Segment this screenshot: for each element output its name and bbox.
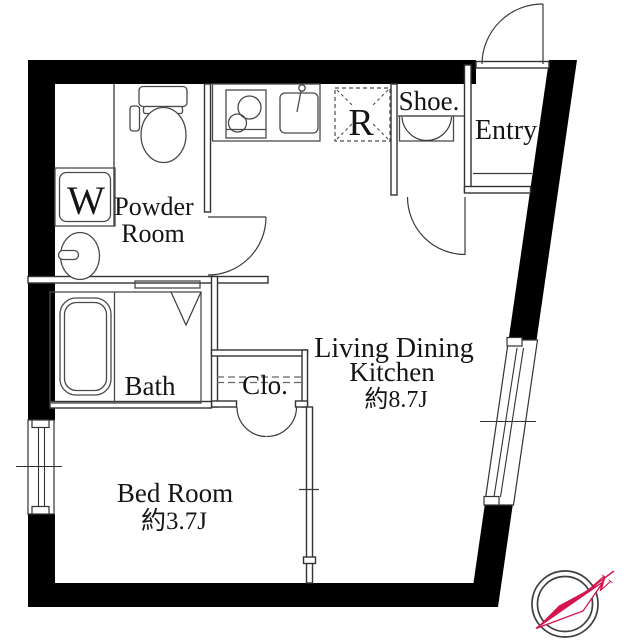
entry-door-threshold [476, 62, 549, 69]
bedroom-area: 約3.7J [141, 507, 207, 535]
wall-entry-bottom [465, 187, 531, 194]
closet-label: Clo. [242, 370, 288, 400]
bathtub-inner [65, 303, 107, 391]
wall-powder-bottom [28, 277, 268, 284]
toilet-icon [130, 87, 187, 163]
powder-room-label-line2: Room [121, 219, 185, 248]
wall-powder-right [205, 84, 211, 212]
wall-bottom [28, 583, 474, 607]
hall-ldk-door [408, 197, 466, 255]
wall-entry-left [465, 65, 472, 192]
bathtub-icon [60, 298, 111, 395]
window-right-slanted [480, 338, 538, 506]
shoe-label: Shoe. [399, 86, 460, 116]
compass-icon: N [532, 568, 616, 637]
entry-door [482, 4, 543, 64]
wall-closet-top [212, 350, 308, 356]
wall-partition-cap [304, 557, 316, 564]
wall-left-lower [28, 514, 55, 583]
window-left [16, 420, 62, 514]
bath-label: Bath [125, 371, 176, 401]
floor-plan-drawing: Powder Room Bath Clo. Bed Room 約3.7J Liv… [0, 0, 640, 640]
floor-plan: Powder Room Bath Clo. Bed Room 約3.7J Liv… [0, 0, 640, 640]
shoe-cabinet-icon [398, 116, 464, 141]
wall-kitchen-hall [391, 84, 397, 195]
bath-folding-door [135, 281, 201, 325]
ldk-area: 約8.7J [364, 386, 427, 413]
wall-top [28, 60, 476, 84]
powder-room-label-line1: Powder [114, 192, 194, 221]
wall-left-upper [28, 60, 55, 420]
washbasin-icon [59, 233, 100, 280]
wall-corridor-left [212, 277, 218, 408]
entry-label: Entry [475, 115, 537, 146]
kitchen-sink-icon [280, 85, 318, 133]
washer-label: W [67, 178, 105, 223]
refrigerator-label: R [348, 102, 374, 144]
ldk-label-line2: Kitchen [349, 357, 435, 387]
bedroom-label: Bed Room [117, 478, 233, 508]
closet-double-doors [237, 407, 297, 437]
stove-icon [226, 90, 266, 138]
powder-room-door [208, 217, 266, 275]
wall-closet-right [302, 350, 308, 407]
wall-closet-jamb-left [212, 401, 237, 407]
wall-closet-jamb-right [296, 401, 308, 407]
